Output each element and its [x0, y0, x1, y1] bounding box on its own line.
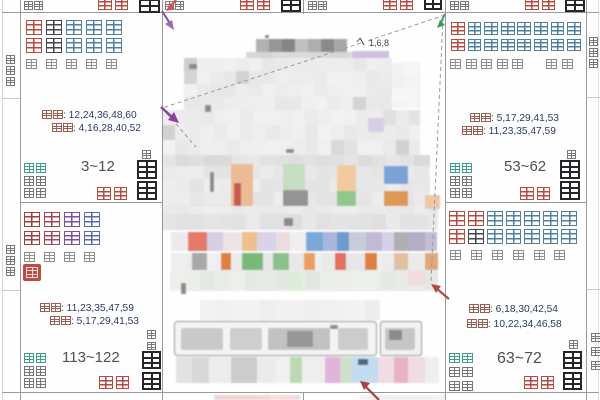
svg-text:1,6,8: 1,6,8: [369, 38, 389, 48]
